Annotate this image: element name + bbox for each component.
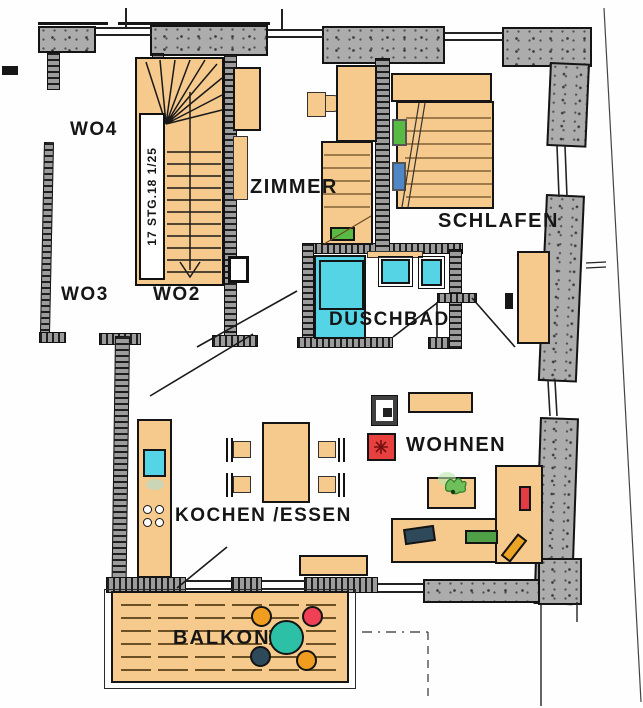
drawing-lines-layer [0, 0, 643, 708]
label-zimmer: ZIMMER [250, 176, 338, 199]
label-duschbad: DUSCHBAD [329, 309, 450, 331]
stair-spec-label: 17 STG.18 1/25 [145, 147, 159, 246]
label-kochen-essen: KOCHEN /ESSEN [175, 505, 352, 527]
fireplace-symbol [374, 440, 388, 454]
label-wo4: WO4 [70, 119, 118, 141]
right-side-windows [548, 146, 606, 416]
floor-plan: 17 STG.18 1/25 [0, 0, 643, 708]
label-wohnen: WOHNEN [406, 434, 506, 457]
label-wo2: WO2 [153, 284, 201, 306]
label-schlafen: SCHLAFEN [438, 210, 559, 233]
stair-spec-label-box: 17 STG.18 1/25 [139, 113, 165, 280]
coffee-table-plant [438, 472, 466, 494]
label-wo3: WO3 [61, 284, 109, 306]
label-balkon: BALKON [173, 627, 271, 650]
projection-lines [362, 8, 641, 706]
